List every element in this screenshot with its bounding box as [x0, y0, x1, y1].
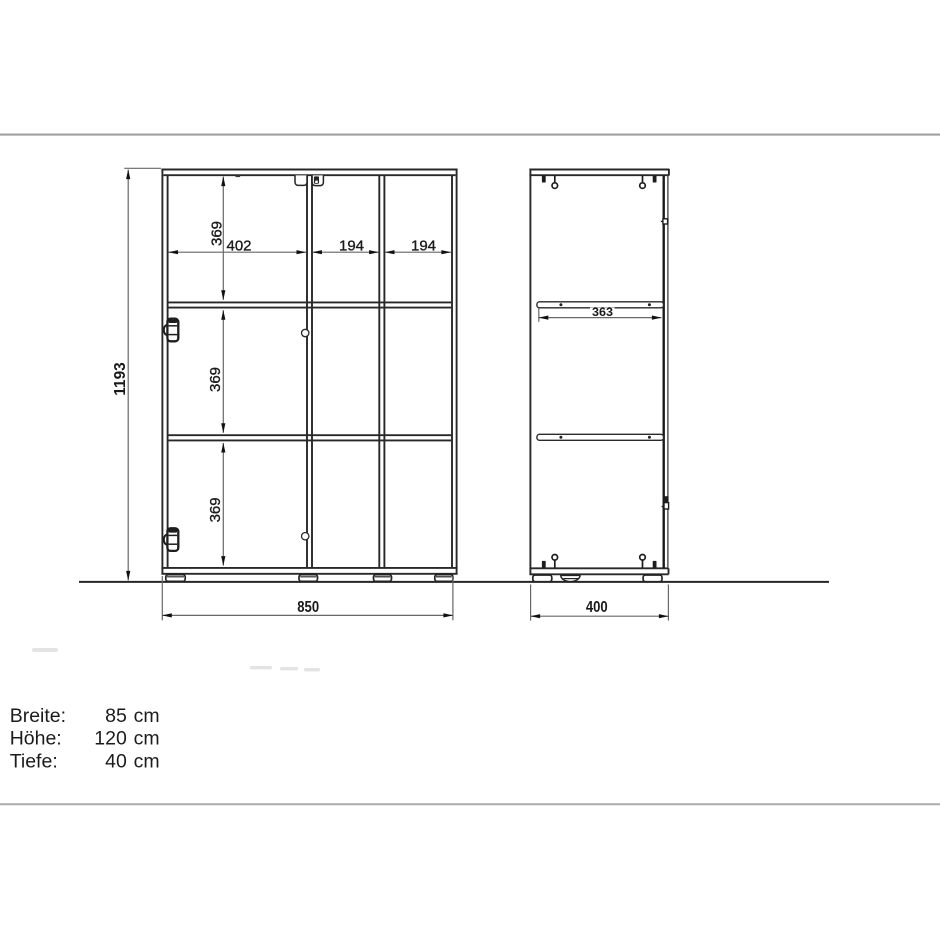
svg-text:400: 400 — [586, 599, 608, 616]
svg-text:1193: 1193 — [112, 362, 129, 396]
svg-text:363: 363 — [592, 305, 613, 319]
svg-text:402: 402 — [226, 237, 251, 254]
svg-text:cm: cm — [134, 705, 160, 727]
svg-text:120: 120 — [94, 728, 127, 750]
svg-text:Höhe:: Höhe: — [10, 728, 62, 750]
svg-text:Breite:: Breite: — [10, 705, 66, 727]
svg-text:194: 194 — [411, 238, 436, 255]
svg-text:369: 369 — [207, 497, 224, 522]
svg-text:40: 40 — [105, 750, 127, 772]
svg-text:369: 369 — [208, 221, 225, 246]
svg-text:Tiefe:: Tiefe: — [10, 750, 58, 772]
svg-text:850: 850 — [297, 599, 319, 616]
svg-text:85: 85 — [105, 705, 127, 727]
svg-text:369: 369 — [207, 367, 224, 392]
svg-text:cm: cm — [134, 728, 160, 750]
svg-text:194: 194 — [339, 238, 364, 255]
svg-text:cm: cm — [134, 750, 160, 772]
